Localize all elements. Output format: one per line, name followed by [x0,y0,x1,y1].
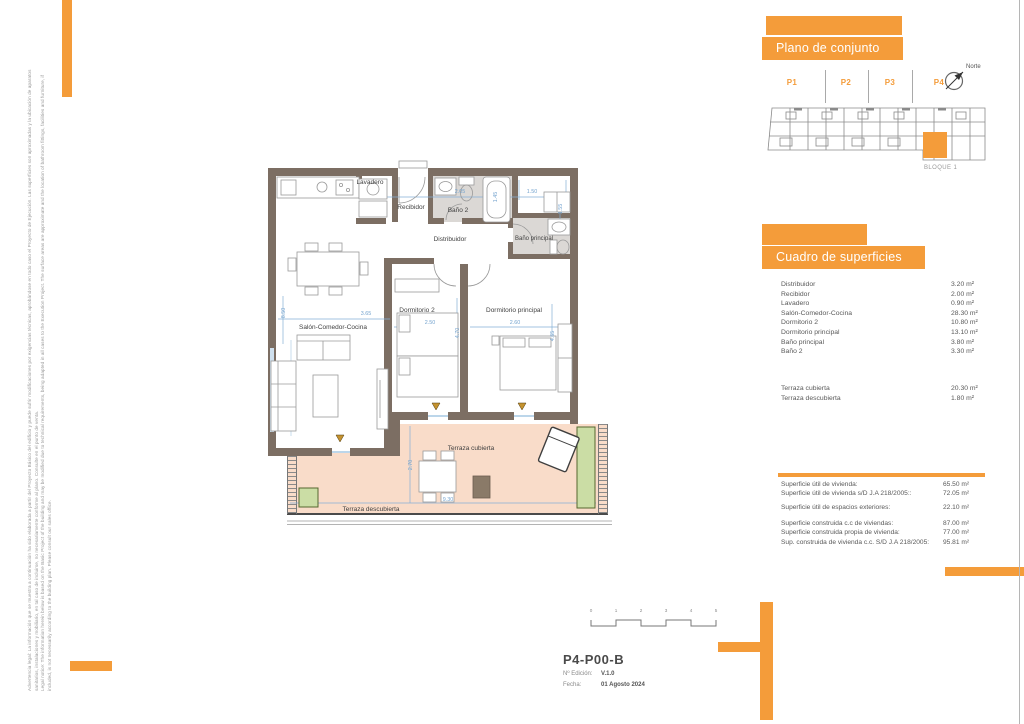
scale-tick: 2 [638,608,644,613]
dim-bano2-depth: 1.45 [493,187,499,207]
superficies-table: Distribuidor3.20 m² Recibidor2.00 m² Lav… [781,280,993,357]
summary-label: Superficie útil de vivienda s/D J.A 218/… [781,489,943,498]
dim-salon-depth: 8.50 [281,303,287,323]
room-area: 20.30 m² [951,384,993,394]
room-label-bano-principal: Baño principal [504,236,564,243]
summary-group-util: Superficie útil de vivienda:65.50 m² Sup… [781,480,993,499]
room-label-bano2: Baño 2 [436,207,480,214]
plan-code: P4-P00-B [563,652,624,667]
deco-rule-summary [778,473,985,477]
dim-vestidor-depth: 1.55 [558,199,564,219]
room-area: 0.90 m² [951,299,993,309]
dim-salon-width: 3.65 [356,311,376,317]
legal-disclaimer-line2: sanitarios, instalaciones y mobiliario, … [34,411,39,691]
table-row: Lavadero0.90 m² [781,299,993,309]
room-name: Distribuidor [781,280,951,290]
table-row: Superficie útil de espacios exteriores:2… [781,503,993,512]
table-row: Superficie construida c.c de viviendas:8… [781,519,993,528]
dim-dormp-depth: 4.65 [550,326,556,346]
dim-dorm2-width: 2.50 [420,320,440,326]
table-row: Superficie útil de vivienda s/D J.A 218/… [781,489,993,498]
room-label-dormitorio-principal: Dormitorio principal [478,307,550,314]
deco-bar-top-left [62,0,72,97]
plano-conjunto-title: Plano de conjunto [776,41,879,55]
room-area: 3.80 m² [951,338,993,348]
summary-label: Superficie útil de vivienda: [781,480,943,489]
summary-group-exterior: Superficie útil de espacios exteriores:2… [781,503,993,512]
room-area: 2.00 m² [951,290,993,300]
room-label-terraza-descubierta: Terraza descubierta [338,506,404,513]
room-name: Recibidor [781,290,951,300]
summary-label: Sup. construida de vivienda c.c. S/D J.A… [781,538,943,547]
section-label-p2: P2 [834,78,858,87]
table-row: Baño principal3.80 m² [781,338,993,348]
date-value: 01 Agosto 2024 [601,682,645,688]
scale-tick: 0 [588,608,594,613]
dim-terraza-depth: 2.70 [408,455,414,475]
table-row: Salón-Comedor-Cocina28.30 m² [781,309,993,319]
summary-value: 65.50 m² [943,480,993,489]
table-row: Dormitorio principal13.10 m² [781,328,993,338]
room-area: 28.30 m² [951,309,993,319]
dim-dormp-width: 2.60 [505,320,525,326]
cuadro-superficies-header: Cuadro de superficies [762,246,925,269]
dim-terraza-width: 9.30 [438,497,458,503]
scale-tick: 4 [688,608,694,613]
summary-label: Superficie construida c.c de viviendas: [781,519,943,528]
plan-sheet: Advertencia legal: La información que se… [0,0,1024,724]
room-area: 3.30 m² [951,347,993,357]
room-area: 10.80 m² [951,318,993,328]
legal-disclaimer-line4: included, is not necessarily according t… [47,500,52,691]
deco-bar-bottom-vertical [760,602,773,720]
dim-bano2-width: 2.05 [450,189,470,195]
deco-bar-bottom-left [70,661,112,671]
summary-value: 87.00 m² [943,519,993,528]
dim-dorm2-depth: 4.70 [455,323,461,343]
scale-tick: 1 [613,608,619,613]
summary-label: Superficie construida propia de vivienda… [781,528,943,537]
summary-group-construida: Superficie construida c.c de viviendas:8… [781,519,993,547]
plano-conjunto-header: Plano de conjunto [762,37,903,60]
section-label-p3: P3 [878,78,902,87]
room-name: Dormitorio 2 [781,318,951,328]
dim-vestidor-width: 1.50 [522,189,542,195]
edition-label: Nº Edición: [563,671,593,677]
block-label: BLOQUE 1 [924,165,957,171]
deco-bar-top-right [766,16,902,35]
room-label-distribuidor: Distribuidor [424,236,476,243]
room-area: 13.10 m² [951,328,993,338]
cuadro-superficies-title: Cuadro de superficies [776,250,902,264]
room-label-recibidor: Recibidor [388,204,434,211]
room-label-salon: Salón-Comedor-Cocina [294,324,372,331]
table-row: Recibidor2.00 m² [781,290,993,300]
room-name: Lavadero [781,299,951,309]
room-name: Terraza descubierta [781,394,951,404]
legal-disclaimer-line3: Legal notice: The information herein bel… [40,75,45,691]
room-name: Terraza cubierta [781,384,951,394]
summary-value: 95.81 m² [943,538,993,547]
page-border-right [1019,0,1020,724]
room-name: Baño 2 [781,347,951,357]
scale-tick: 3 [663,608,669,613]
terrace-table: Terraza cubierta20.30 m² Terraza descubi… [781,384,993,403]
room-label-lavadero: Lavadero [346,179,394,186]
table-row: Sup. construida de vivienda c.c. S/D J.A… [781,538,993,547]
date-label: Fecha: [563,682,581,688]
summary-value: 77.00 m² [943,528,993,537]
room-label-dormitorio2: Dormitorio 2 [392,307,442,314]
room-name: Dormitorio principal [781,328,951,338]
summary-value: 22.10 m² [943,503,993,512]
scale-bar [589,616,719,632]
table-row: Terraza cubierta20.30 m² [781,384,993,394]
summary-value: 72.05 m² [943,489,993,498]
section-label-p1: P1 [780,78,804,87]
table-row: Superficie útil de vivienda:65.50 m² [781,480,993,489]
room-name: Salón-Comedor-Cocina [781,309,951,319]
deco-bar-bottom-arm [718,642,760,652]
north-label: Norte [966,64,981,70]
table-row: Baño 23.30 m² [781,347,993,357]
deco-bar-mid-right [762,224,867,245]
room-area: 1.80 m² [951,394,993,404]
entrance-step [399,161,427,168]
table-row: Dormitorio 210.80 m² [781,318,993,328]
table-row: Terraza descubierta1.80 m² [781,394,993,404]
edition-value: V.1.0 [601,671,614,677]
scale-tick: 5 [713,608,719,613]
room-area: 3.20 m² [951,280,993,290]
summary-label: Superficie útil de espacios exteriores: [781,503,943,512]
highlighted-unit [923,132,947,158]
room-label-terraza-cubierta: Terraza cubierta [442,445,500,452]
table-row: Superficie construida propia de vivienda… [781,528,993,537]
deco-bar-bottom-right [945,567,1024,576]
room-name: Baño principal [781,338,951,348]
table-row: Distribuidor3.20 m² [781,280,993,290]
legal-disclaimer-line1: Advertencia legal: La información que se… [27,70,32,691]
